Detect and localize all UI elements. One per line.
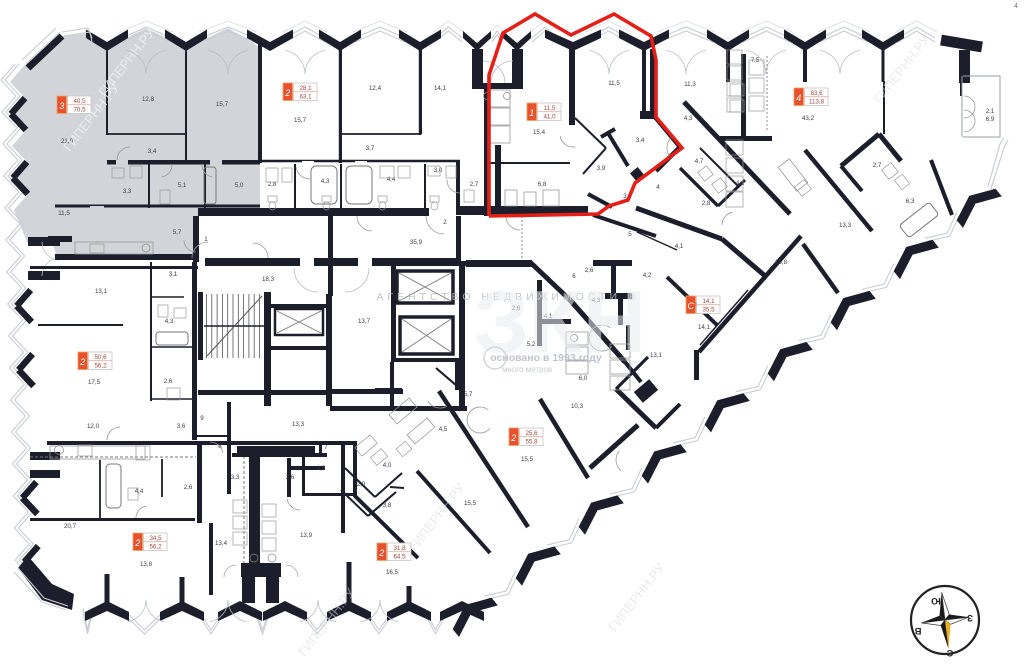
svg-text:В: В (914, 625, 921, 636)
svg-text:2,0: 2,0 (357, 481, 366, 488)
svg-text:18,3: 18,3 (262, 276, 275, 283)
svg-text:7,5: 7,5 (751, 57, 760, 64)
svg-text:15,7: 15,7 (216, 101, 229, 108)
svg-text:2,6: 2,6 (286, 474, 295, 481)
svg-text:40,5: 40,5 (73, 98, 86, 105)
svg-text:5,7: 5,7 (464, 391, 473, 398)
svg-text:3,3: 3,3 (231, 474, 240, 481)
svg-text:43,2: 43,2 (802, 115, 815, 122)
svg-text:83,6: 83,6 (810, 90, 823, 97)
svg-text:4,1: 4,1 (736, 180, 745, 187)
svg-text:35,5: 35,5 (702, 307, 715, 314)
svg-text:3,7: 3,7 (366, 145, 375, 152)
svg-text:12,4: 12,4 (369, 85, 382, 92)
svg-text:4,5: 4,5 (439, 426, 448, 433)
svg-text:2,7: 2,7 (470, 181, 479, 188)
svg-text:3,6: 3,6 (177, 423, 186, 430)
svg-text:13,3: 13,3 (292, 421, 305, 428)
svg-text:3,4: 3,4 (636, 137, 645, 144)
svg-text:15,8: 15,8 (775, 259, 788, 266)
svg-text:11,5: 11,5 (544, 105, 556, 112)
svg-text:6,3: 6,3 (906, 198, 915, 205)
svg-text:31,8: 31,8 (393, 545, 406, 552)
svg-text:3,9: 3,9 (597, 165, 606, 172)
svg-text:35,9: 35,9 (410, 239, 423, 246)
svg-text:ЗКН: ЗКН (474, 272, 646, 371)
svg-text:3,4: 3,4 (148, 148, 157, 155)
svg-text:4: 4 (1014, 3, 1018, 10)
svg-text:2: 2 (443, 219, 447, 226)
svg-text:41,0: 41,0 (543, 114, 556, 121)
svg-text:11,5: 11,5 (608, 80, 620, 87)
svg-text:3: 3 (59, 101, 64, 111)
svg-text:11,5: 11,5 (58, 210, 70, 217)
svg-text:2,1: 2,1 (986, 108, 995, 115)
svg-text:4,3: 4,3 (321, 178, 330, 185)
svg-text:6,9: 6,9 (986, 116, 995, 123)
svg-text:5,0: 5,0 (235, 182, 244, 189)
svg-text:7: 7 (324, 444, 328, 451)
svg-text:4,7: 4,7 (695, 158, 704, 165)
svg-text:113,8: 113,8 (809, 99, 825, 106)
svg-text:2: 2 (510, 433, 516, 443)
svg-text:55,8: 55,8 (525, 439, 538, 446)
svg-text:3,8: 3,8 (383, 502, 392, 509)
svg-text:13,3: 13,3 (839, 222, 852, 229)
svg-text:4,3: 4,3 (165, 318, 174, 325)
svg-text:15,5: 15,5 (521, 456, 534, 463)
svg-text:2: 2 (284, 88, 290, 98)
svg-text:2,6: 2,6 (164, 378, 173, 385)
svg-text:2,6: 2,6 (184, 484, 193, 491)
svg-text:15,4: 15,4 (533, 129, 546, 136)
svg-text:15,7: 15,7 (294, 117, 307, 124)
svg-text:10,3: 10,3 (571, 403, 584, 410)
svg-text:64,5: 64,5 (393, 554, 406, 561)
svg-text:4,3: 4,3 (684, 115, 693, 122)
svg-text:63,1: 63,1 (299, 94, 312, 101)
svg-text:4,4: 4,4 (135, 488, 144, 495)
svg-text:6,0: 6,0 (579, 375, 588, 382)
svg-text:9: 9 (200, 415, 204, 422)
svg-text:2,7: 2,7 (873, 162, 882, 169)
svg-text:С: С (946, 647, 953, 658)
svg-text:70,5: 70,5 (73, 107, 86, 114)
svg-text:13,1: 13,1 (95, 288, 108, 295)
svg-text:34,5: 34,5 (149, 535, 162, 542)
svg-text:13,7: 13,7 (358, 318, 371, 325)
svg-text:Ю: Ю (931, 595, 941, 606)
svg-text:13,4: 13,4 (215, 540, 228, 547)
svg-text:15,5: 15,5 (464, 500, 477, 507)
svg-text:1,9: 1,9 (317, 465, 326, 472)
svg-text:56,2: 56,2 (149, 544, 162, 551)
svg-text:З: З (967, 612, 973, 623)
svg-text:3,3: 3,3 (123, 188, 132, 195)
svg-text:2: 2 (378, 548, 384, 558)
svg-text:16,5: 16,5 (386, 569, 399, 576)
svg-text:12,8: 12,8 (142, 96, 155, 103)
svg-text:4,1: 4,1 (675, 243, 684, 250)
svg-text:5: 5 (628, 231, 632, 238)
svg-text:12,0: 12,0 (87, 423, 100, 430)
svg-text:2: 2 (134, 538, 140, 548)
svg-text:6,8: 6,8 (538, 181, 547, 188)
svg-text:14,1: 14,1 (434, 85, 447, 92)
svg-text:17,5: 17,5 (88, 379, 101, 386)
svg-text:2,8: 2,8 (702, 200, 711, 207)
svg-text:5,7: 5,7 (173, 229, 182, 236)
svg-text:4,0: 4,0 (383, 462, 392, 469)
svg-text:14,1: 14,1 (698, 324, 711, 331)
svg-text:3,0: 3,0 (434, 167, 443, 174)
svg-text:5,1: 5,1 (178, 182, 187, 189)
svg-text:20,7: 20,7 (64, 523, 77, 530)
svg-text:3,1: 3,1 (169, 271, 178, 278)
svg-text:11,3: 11,3 (684, 81, 696, 88)
svg-text:4,4: 4,4 (387, 176, 396, 183)
svg-text:С: С (688, 301, 695, 311)
svg-text:13,9: 13,9 (300, 532, 313, 539)
svg-text:14,1: 14,1 (702, 298, 715, 305)
svg-text:28,1: 28,1 (299, 85, 312, 92)
svg-text:4: 4 (656, 184, 660, 191)
svg-text:56,2: 56,2 (94, 363, 107, 370)
svg-text:50,6: 50,6 (94, 354, 107, 361)
svg-text:2: 2 (79, 357, 85, 367)
svg-text:13,1: 13,1 (650, 352, 663, 359)
svg-text:4: 4 (796, 93, 801, 103)
svg-text:13,8: 13,8 (140, 561, 153, 568)
svg-text:1: 1 (529, 108, 534, 118)
svg-text:25,6: 25,6 (525, 430, 538, 437)
